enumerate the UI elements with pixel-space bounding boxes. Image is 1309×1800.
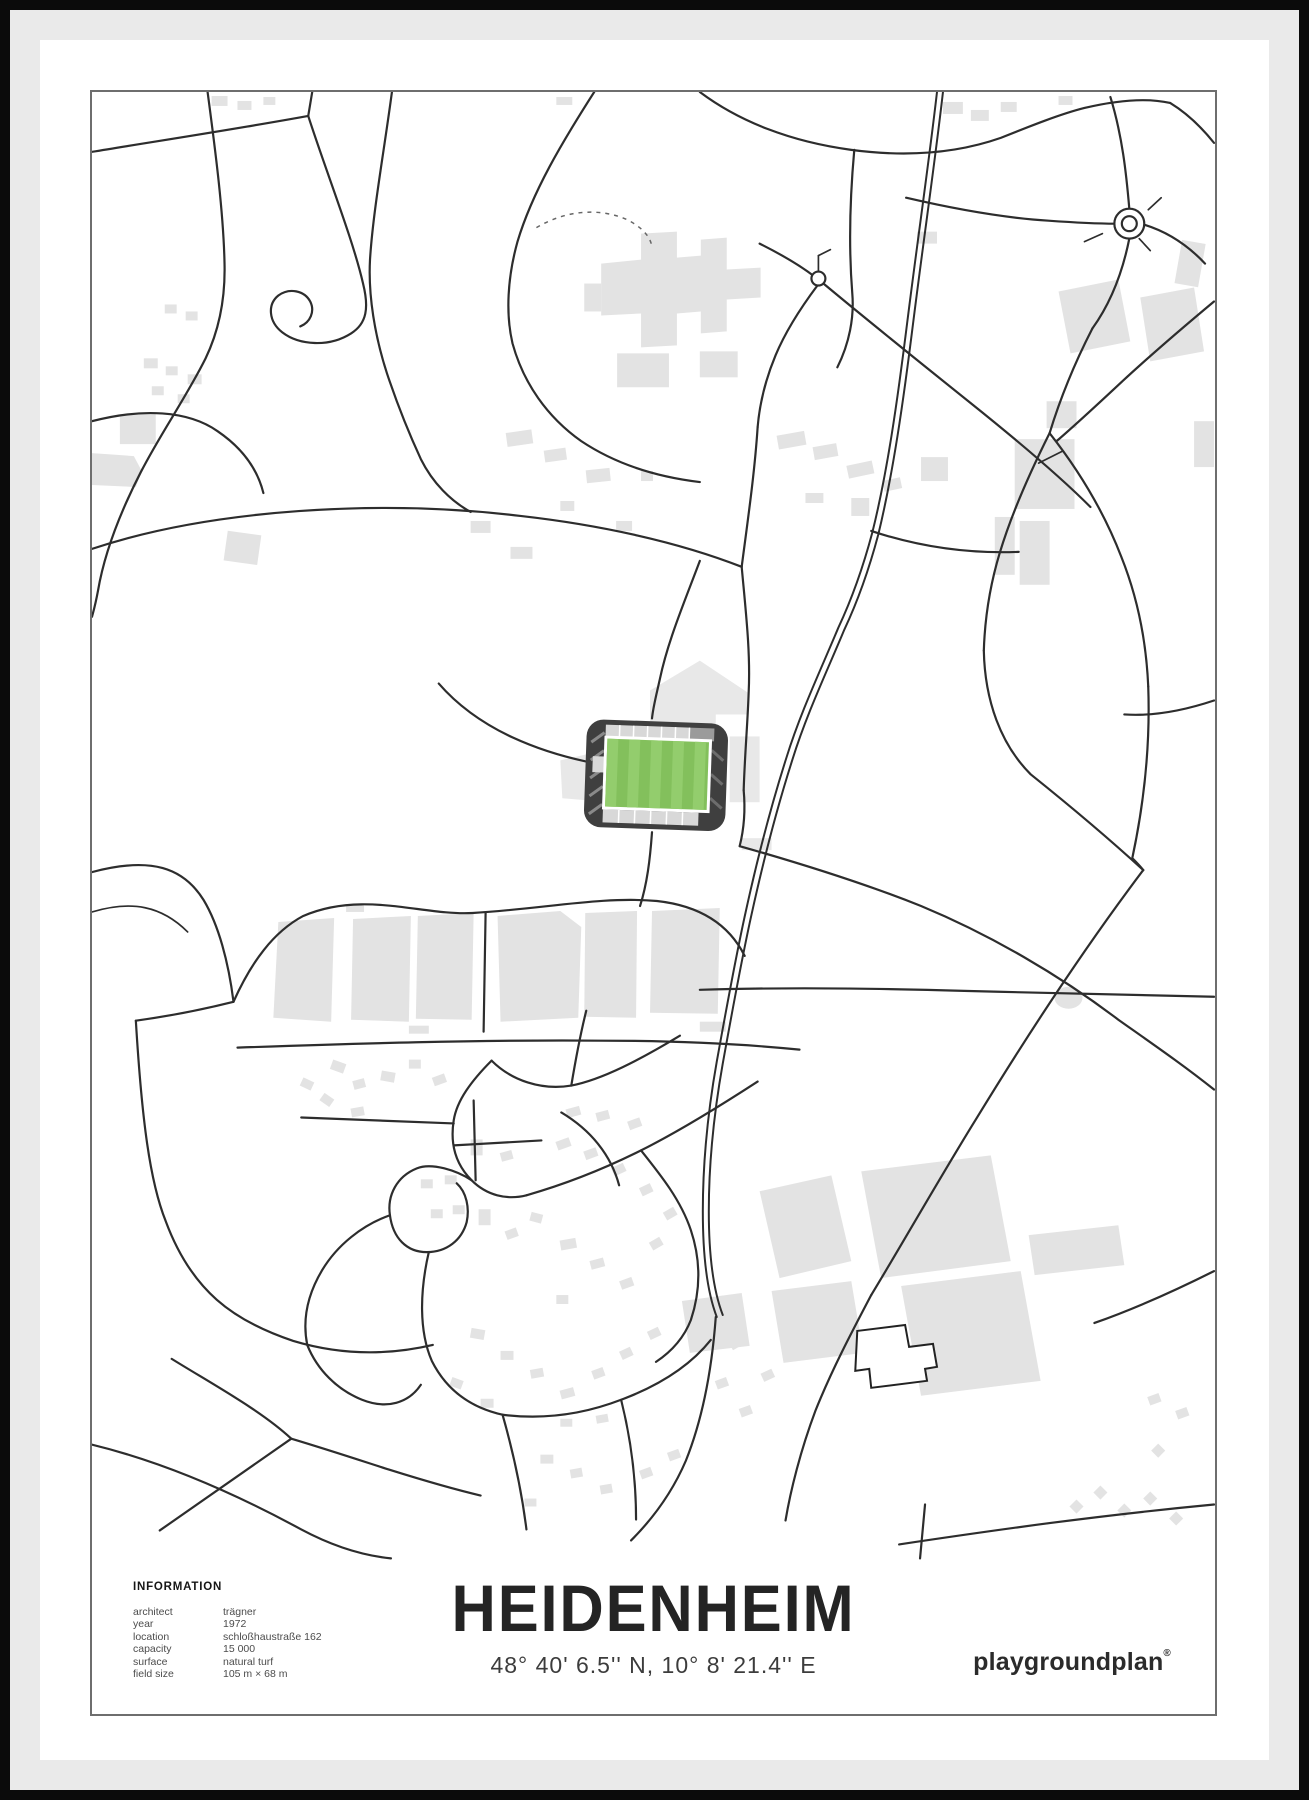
brand-logo: playgroundplan®: [973, 1648, 1171, 1677]
roundabout-icon: [1114, 209, 1144, 239]
dashed-footpath: [536, 212, 652, 247]
map: INFORMATION architect trägner year 1972 …: [90, 90, 1217, 1716]
junction-circle-icon: [811, 272, 825, 286]
registered-mark: ®: [1163, 1648, 1171, 1659]
stadium-icon: [583, 719, 728, 832]
stadium-map-poster: INFORMATION architect trägner year 1972 …: [0, 0, 1309, 1800]
city-title: HEIDENHEIM: [131, 1570, 1175, 1646]
brand-name: playgroundplan: [973, 1648, 1163, 1676]
stadium-pitch: [602, 736, 712, 814]
city-map-graphic: [92, 92, 1215, 1714]
